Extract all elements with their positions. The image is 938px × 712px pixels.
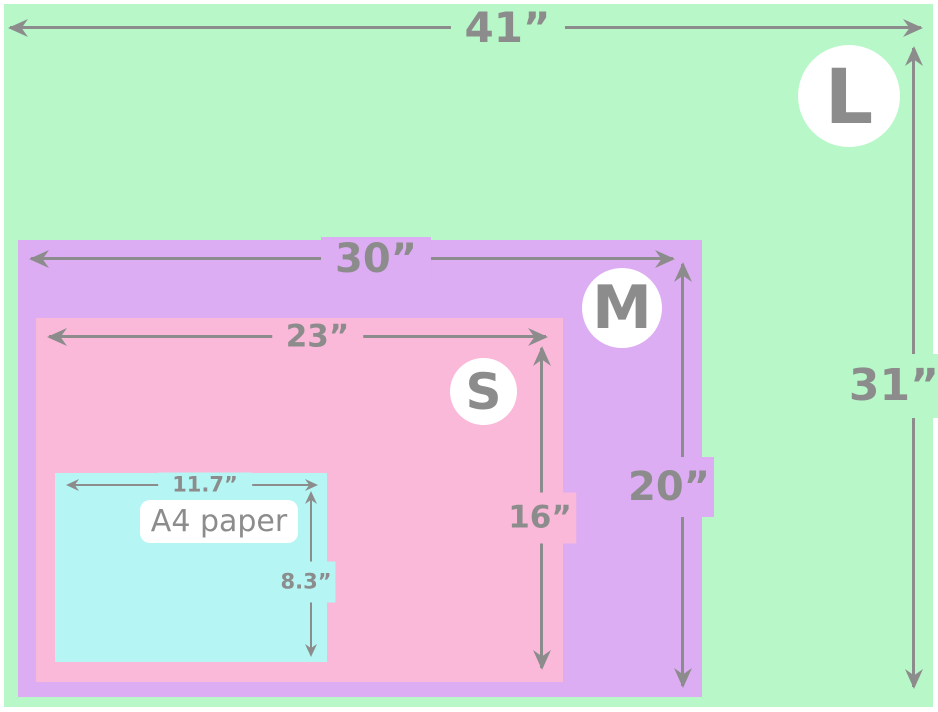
dimension-m-height: 20” <box>670 262 696 688</box>
m-height-label: 20” <box>624 457 714 517</box>
badge-size-l: L <box>798 45 900 147</box>
a4-width-label: 11.7” <box>158 473 252 498</box>
dimension-s-height: 16” <box>529 346 555 670</box>
a4-paper-tag-label: A4 paper <box>151 504 287 539</box>
dimension-a4-height: 8.3” <box>301 491 321 657</box>
dimension-l-height: 31” <box>900 46 928 689</box>
badge-s-letter: S <box>465 363 501 421</box>
s-width-label: 23” <box>272 320 364 355</box>
badge-m-letter: M <box>592 273 652 343</box>
l-height-label: 31” <box>845 354 938 418</box>
size-comparison-diagram: 41” 31” 30” 20” 23” 16” 11 <box>0 0 938 712</box>
badge-l-letter: L <box>825 52 873 141</box>
dimension-m-width: 30” <box>29 245 675 273</box>
m-width-label: 30” <box>321 237 431 281</box>
dimension-l-width: 41” <box>8 13 923 43</box>
s-height-label: 16” <box>504 493 576 544</box>
a4-paper-tag: A4 paper <box>140 500 298 543</box>
l-width-label: 41” <box>450 5 564 51</box>
badge-size-s: S <box>450 358 517 425</box>
dimension-a4-width: 11.7” <box>66 476 318 494</box>
badge-size-m: M <box>582 268 662 348</box>
a4-height-label: 8.3” <box>276 562 335 603</box>
dimension-s-width: 23” <box>47 324 548 350</box>
